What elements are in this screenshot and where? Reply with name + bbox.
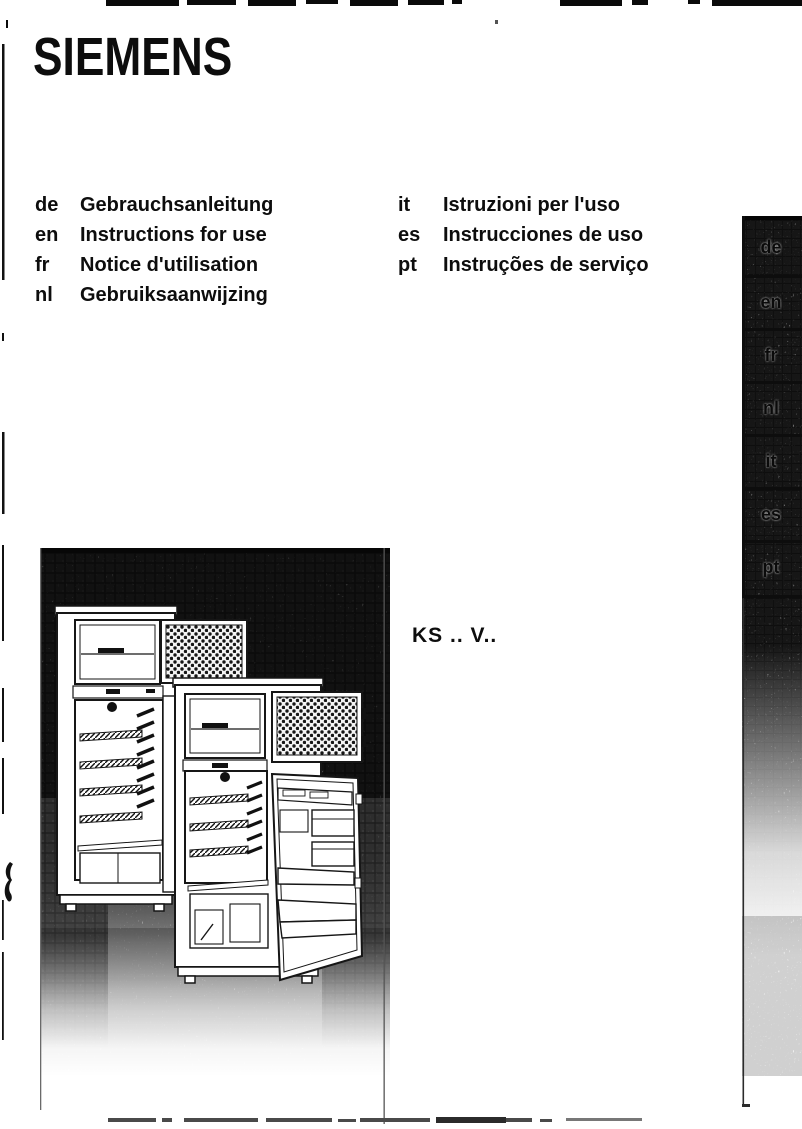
language-row: nl Gebruiksaanwijzing: [35, 280, 273, 310]
right-freezer-door: [272, 692, 366, 762]
left-freezer-door: [161, 620, 247, 683]
language-list-left: de Gebrauchsanleitung en Instructions fo…: [35, 190, 273, 310]
right-refrigerator: [173, 678, 366, 983]
language-row: it Istruzioni per l'uso: [398, 190, 649, 220]
illustration-left-border: [40, 548, 41, 1110]
illustration-right-border: [384, 548, 385, 1124]
sidebar-tab-en: en: [742, 275, 800, 330]
torn-edge-bottom: [0, 1112, 802, 1129]
right-fridge-door: [272, 774, 362, 980]
language-row: de Gebrauchsanleitung: [35, 190, 273, 220]
language-row: es Instrucciones de uso: [398, 220, 649, 250]
language-row: pt Instruções de serviço: [398, 250, 649, 280]
sidebar-tab-de: de: [742, 220, 800, 275]
siemens-logo: SIEMENS: [33, 26, 232, 88]
sidebar-texture-fadeout: [742, 916, 802, 1076]
right-fridge-compartment: [185, 771, 268, 948]
language-code: pt: [398, 250, 443, 280]
sidebar-tab-es: es: [742, 487, 800, 542]
manual-cover-page: SIEMENS de Gebrauchsanleitung en Instruc…: [0, 0, 802, 1129]
language-code: it: [398, 190, 443, 220]
language-label: Instructions for use: [80, 220, 267, 250]
language-code: de: [35, 190, 80, 220]
language-label: Gebrauchsanleitung: [80, 190, 273, 220]
language-label: Notice d'utilisation: [80, 250, 258, 280]
sidebar-tab-pt: pt: [742, 540, 800, 595]
pen-mark: [5, 862, 13, 901]
language-code: nl: [35, 280, 80, 310]
right-freezer-compartment: [185, 694, 265, 758]
left-freezer-compartment: [75, 620, 160, 684]
refrigerators-illustration: [40, 548, 390, 1126]
language-code: fr: [35, 250, 80, 280]
language-code: en: [35, 220, 80, 250]
sidebar-tab-it: it: [742, 434, 800, 489]
language-label: Gebruiksaanwijzing: [80, 280, 268, 310]
language-code: es: [398, 220, 443, 250]
language-row: en Instructions for use: [35, 220, 273, 250]
sidebar-tab-fr: fr: [742, 328, 800, 383]
language-label: Instruções de serviço: [443, 250, 649, 280]
language-list-right: it Istruzioni per l'uso es Instrucciones…: [398, 190, 649, 280]
left-fridge-compartment: [75, 700, 163, 883]
language-label: Instrucciones de uso: [443, 220, 643, 250]
language-label: Istruzioni per l'uso: [443, 190, 620, 220]
margin-marks-left: [0, 0, 24, 1129]
language-row: fr Notice d'utilisation: [35, 250, 273, 280]
illustration-top-border: [40, 548, 390, 553]
model-code: KS .. V..: [412, 624, 497, 648]
sidebar-tab-nl: nl: [742, 381, 800, 436]
